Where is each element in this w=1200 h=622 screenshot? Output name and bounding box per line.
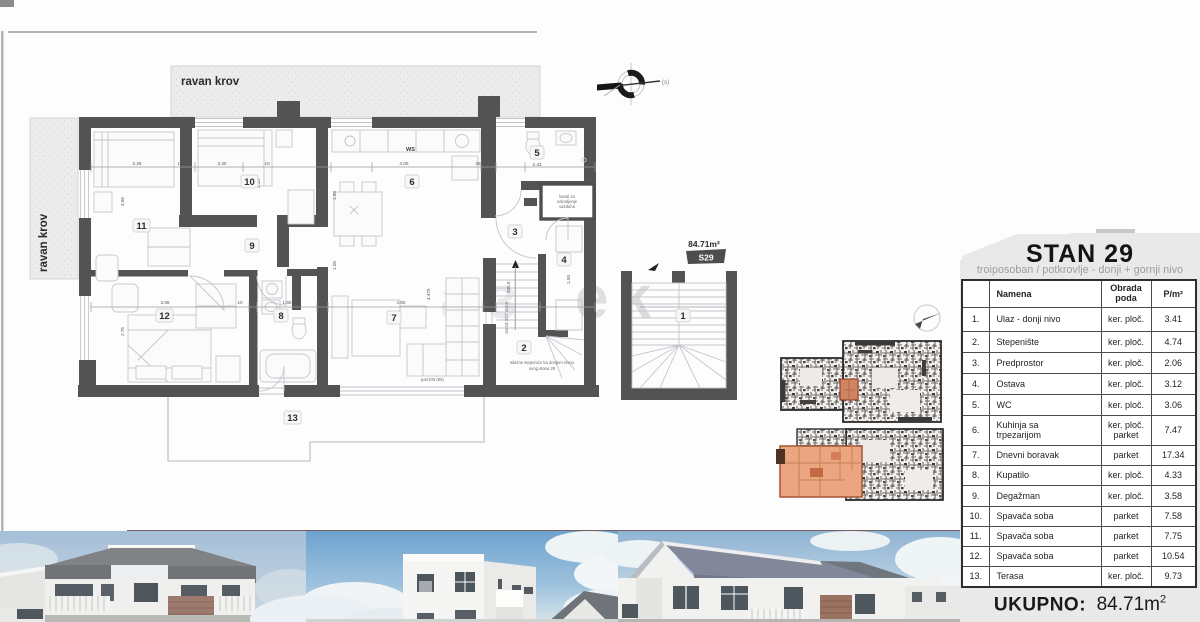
svg-text:6: 6 (409, 177, 414, 188)
svg-text:10: 10 (244, 177, 255, 188)
svg-text:vazduha: vazduha (559, 204, 576, 209)
svg-text:10: 10 (177, 161, 183, 166)
svg-text:3.30: 3.30 (218, 161, 227, 166)
svg-text:84.71m²: 84.71m² (688, 239, 720, 249)
svg-text:ravan krov: ravan krov (38, 213, 50, 272)
svg-text:2.43: 2.43 (533, 162, 542, 167)
svg-text:ovog stana 29: ovog stana 29 (529, 366, 556, 371)
svg-text:2.75: 2.75 (120, 327, 125, 336)
svg-text:silazne stepenice ka donjem ni: silazne stepenice ka donjem nivou (510, 360, 574, 365)
svg-text:5: 5 (534, 148, 540, 159)
svg-text:13: 13 (287, 413, 298, 424)
svg-text:3: 3 (512, 227, 517, 238)
svg-text:4: 4 (561, 255, 567, 266)
svg-text:1: 1 (680, 311, 686, 322)
svg-text:25: 25 (475, 161, 481, 166)
svg-text:2: 2 (521, 343, 526, 354)
svg-text:455.5: 455.5 (506, 281, 511, 293)
svg-text:9: 9 (249, 241, 254, 252)
svg-text:2.25: 2.25 (133, 161, 142, 166)
svg-text:1.65: 1.65 (283, 300, 292, 305)
svg-text:par/105 (85): par/105 (85) (421, 377, 444, 382)
svg-text:ravan krov: ravan krov (181, 76, 240, 88)
svg-text:4.00: 4.00 (397, 300, 406, 305)
svg-text:1.50: 1.50 (332, 191, 337, 200)
svg-text:1.93: 1.93 (566, 275, 571, 284)
svg-text:11: 11 (136, 221, 147, 232)
svg-text:3.98: 3.98 (161, 300, 170, 305)
svg-text:3.55: 3.55 (120, 197, 125, 206)
svg-text:10: 10 (237, 300, 243, 305)
svg-text:WS: WS (406, 147, 415, 153)
svg-text:8: 8 (278, 311, 283, 322)
svg-text:7: 7 (391, 313, 396, 324)
svg-text:S29: S29 (698, 253, 713, 263)
svg-text:10: 10 (319, 300, 325, 305)
svg-text:(s): (s) (662, 80, 669, 86)
svg-text:12: 12 (159, 311, 170, 322)
svg-text:16x18.3/27 455.5: 16x18.3/27 455.5 (504, 301, 509, 334)
svg-text:4.475: 4.475 (426, 288, 431, 300)
svg-text:10: 10 (264, 161, 270, 166)
svg-text:1.05: 1.05 (332, 261, 337, 270)
svg-text:4.00: 4.00 (400, 161, 409, 166)
